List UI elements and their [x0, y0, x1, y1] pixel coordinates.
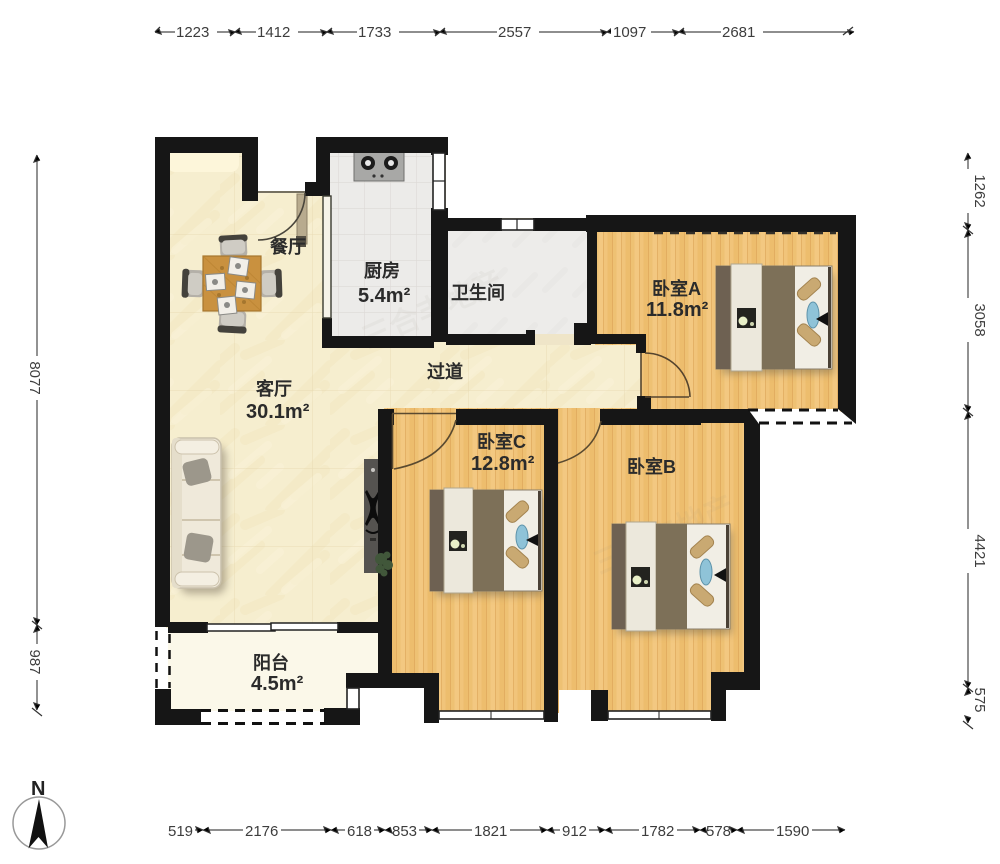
svg-text:1262: 1262 — [971, 174, 988, 207]
svg-text:4421: 4421 — [971, 534, 988, 567]
svg-text:30.1m²: 30.1m² — [246, 401, 310, 423]
svg-text:519: 519 — [168, 823, 193, 840]
svg-text:2681: 2681 — [722, 24, 755, 41]
svg-text:2557: 2557 — [498, 24, 531, 41]
svg-text:卧室C: 卧室C — [477, 431, 526, 452]
svg-text:987: 987 — [26, 649, 43, 674]
svg-text:阳台: 阳台 — [253, 652, 289, 673]
svg-text:1782: 1782 — [641, 823, 674, 840]
svg-text:853: 853 — [392, 823, 417, 840]
svg-text:12.8m²: 12.8m² — [471, 453, 535, 475]
svg-text:575: 575 — [971, 687, 988, 712]
svg-text:8077: 8077 — [26, 361, 43, 394]
svg-text:客厅: 客厅 — [256, 378, 292, 399]
svg-text:卧室A: 卧室A — [652, 278, 701, 299]
svg-text:4.5m²: 4.5m² — [251, 673, 304, 695]
svg-text:卫生间: 卫生间 — [451, 282, 505, 303]
svg-text:餐厅: 餐厅 — [269, 236, 306, 257]
svg-text:1821: 1821 — [474, 823, 507, 840]
svg-text:1733: 1733 — [358, 24, 391, 41]
svg-text:5.4m²: 5.4m² — [358, 285, 411, 307]
svg-text:3058: 3058 — [971, 303, 988, 336]
svg-text:618: 618 — [347, 823, 372, 840]
svg-text:2176: 2176 — [245, 823, 278, 840]
svg-text:过道: 过道 — [427, 361, 463, 382]
svg-text:卧室B: 卧室B — [627, 456, 676, 477]
svg-text:1097: 1097 — [613, 24, 646, 41]
svg-text:1412: 1412 — [257, 24, 290, 41]
svg-text:578: 578 — [706, 823, 731, 840]
svg-text:厨房: 厨房 — [364, 260, 400, 281]
svg-text:1223: 1223 — [176, 24, 209, 41]
svg-text:912: 912 — [562, 823, 587, 840]
svg-text:1590: 1590 — [776, 823, 809, 840]
svg-text:11.8m²: 11.8m² — [646, 299, 709, 321]
